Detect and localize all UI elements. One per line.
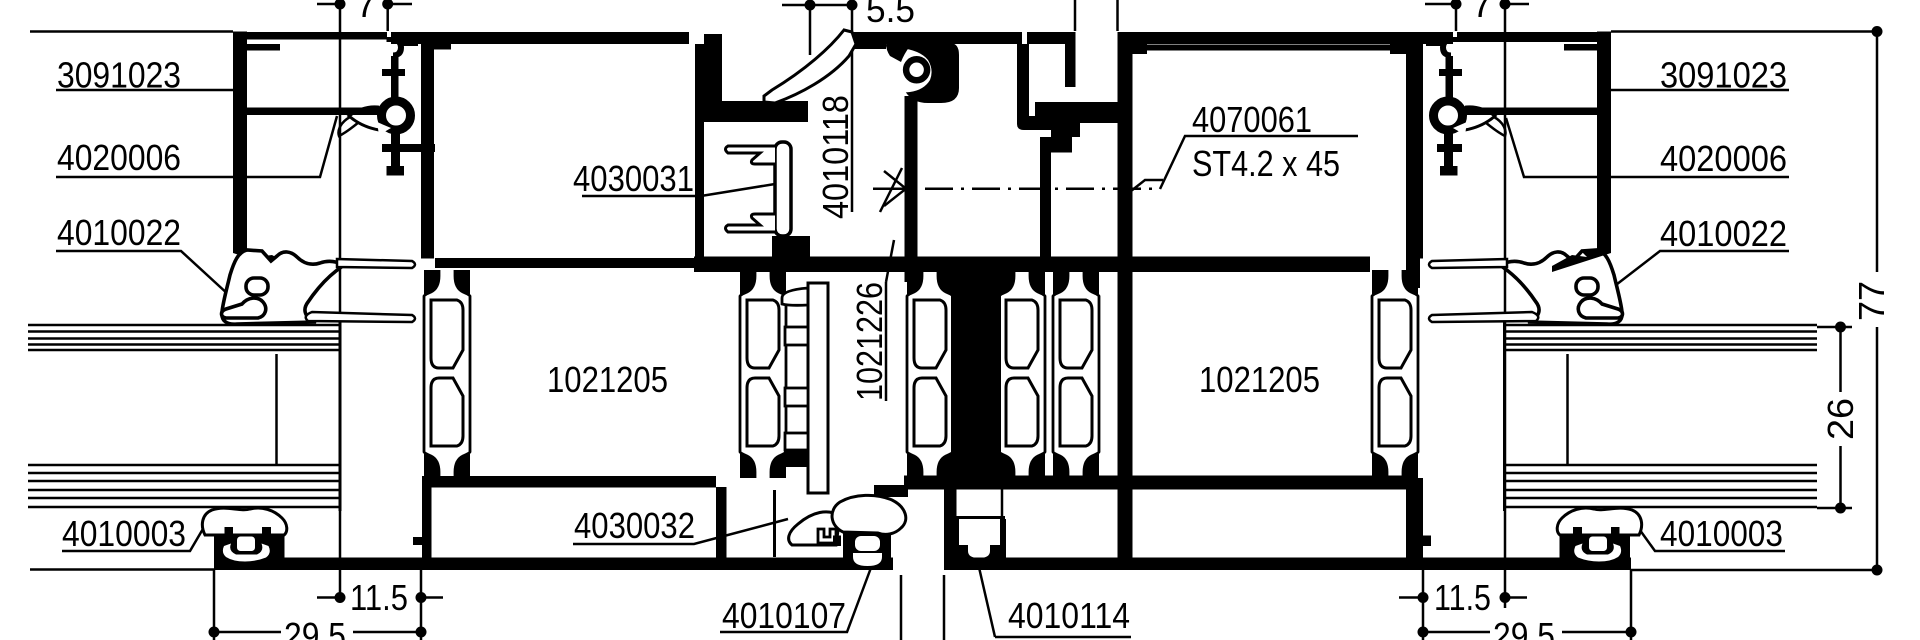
svg-text:77: 77 bbox=[1851, 281, 1892, 321]
svg-text:26: 26 bbox=[1820, 398, 1861, 440]
svg-text:7: 7 bbox=[356, 0, 376, 25]
svg-text:11.5: 11.5 bbox=[1434, 577, 1491, 618]
svg-text:4030032: 4030032 bbox=[574, 505, 695, 546]
svg-text:29.5: 29.5 bbox=[1493, 615, 1555, 640]
svg-text:4070061: 4070061 bbox=[1192, 99, 1312, 140]
svg-text:4010022: 4010022 bbox=[57, 212, 181, 253]
svg-text:1021205: 1021205 bbox=[547, 359, 668, 400]
svg-text:4010107: 4010107 bbox=[722, 595, 846, 636]
svg-text:4010003: 4010003 bbox=[1660, 513, 1783, 554]
svg-text:7: 7 bbox=[1472, 0, 1492, 25]
svg-text:4020006: 4020006 bbox=[57, 137, 181, 178]
svg-text:29.5: 29.5 bbox=[284, 615, 346, 640]
svg-text:11.5: 11.5 bbox=[350, 577, 408, 618]
svg-text:4010114: 4010114 bbox=[1008, 595, 1130, 636]
svg-text:1021226: 1021226 bbox=[849, 282, 890, 401]
svg-text:4020006: 4020006 bbox=[1660, 138, 1787, 179]
svg-text:ST4.2 x 45: ST4.2 x 45 bbox=[1192, 143, 1340, 184]
svg-text:5.5: 5.5 bbox=[866, 0, 915, 30]
svg-text:4030031: 4030031 bbox=[573, 158, 694, 199]
svg-text:1021205: 1021205 bbox=[1199, 359, 1320, 400]
svg-text:4010003: 4010003 bbox=[62, 513, 186, 554]
svg-text:4010022: 4010022 bbox=[1660, 213, 1787, 254]
svg-text:4010118: 4010118 bbox=[815, 95, 856, 219]
